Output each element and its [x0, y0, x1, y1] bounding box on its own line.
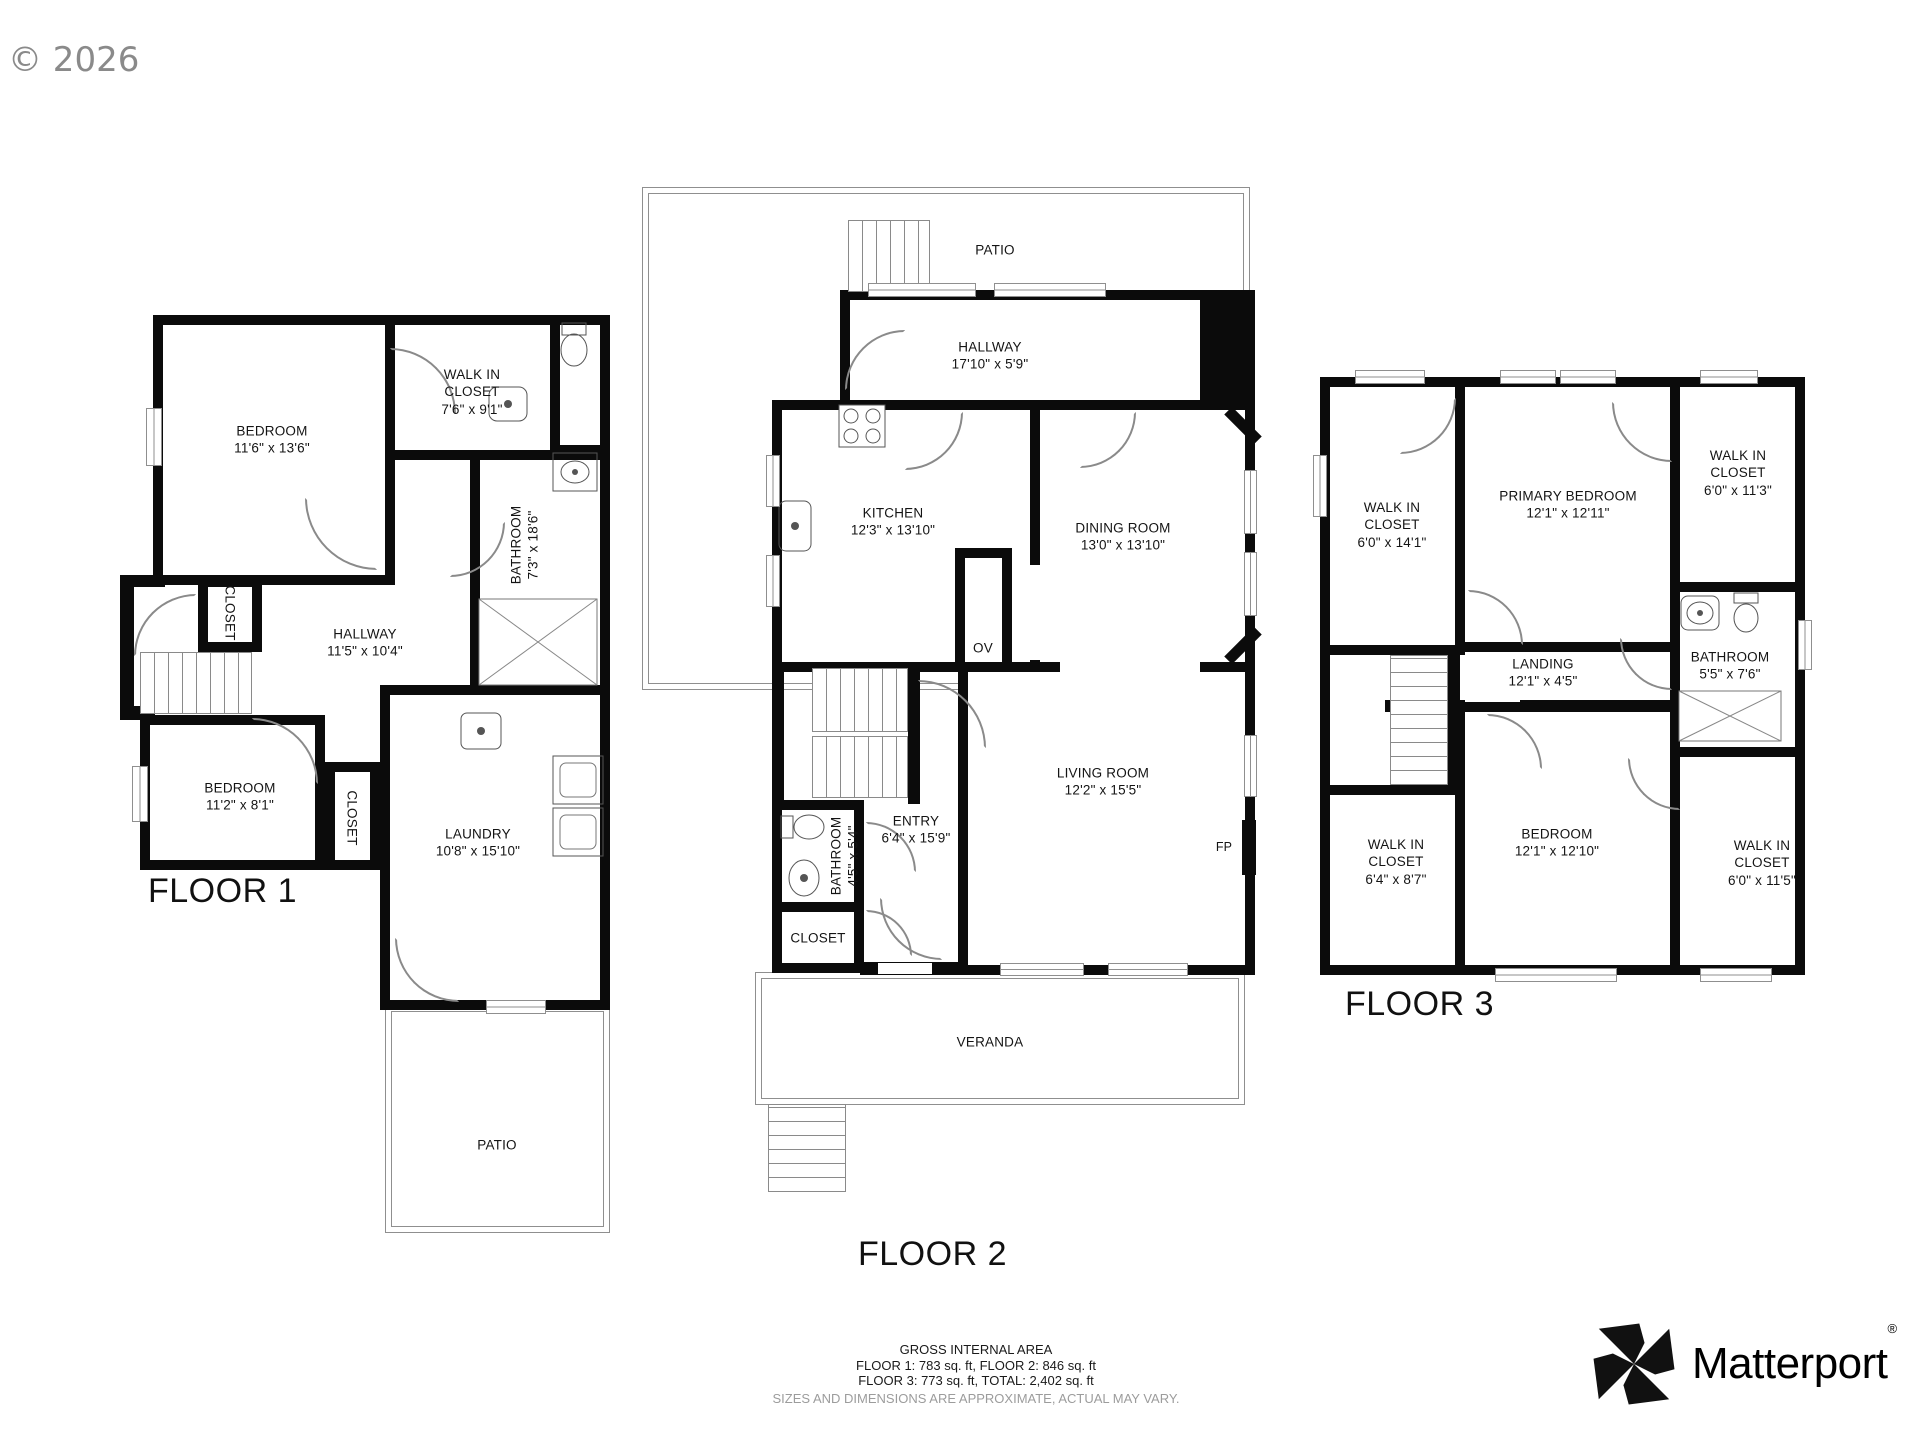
room-dims: 12'2" x 15'5": [1057, 782, 1149, 799]
room-name: WALK IN CLOSET: [1353, 499, 1431, 534]
floor3-stairs: [1390, 655, 1448, 785]
room-dims: 5'5" x 7'6": [1691, 666, 1770, 683]
utility-sink-icon: [460, 712, 502, 750]
floor2-patio-stairs: [848, 220, 930, 292]
floor3-window: [1560, 370, 1616, 384]
floor2-living-window: [1000, 963, 1084, 976]
room-label-kitchen: KITCHEN 12'3" x 13'10": [851, 505, 935, 540]
room-name: LIVING ROOM: [1057, 765, 1149, 782]
room-label-closet-lower: CLOSET: [343, 790, 360, 845]
floor1-bedroom2-window: [132, 766, 148, 822]
toilet-icon: [1726, 592, 1766, 634]
floor2-kitchen-window: [766, 455, 780, 507]
room-dims: 12'1" x 12'11": [1499, 505, 1637, 522]
room-name: BEDROOM: [234, 423, 310, 440]
room-label-living: LIVING ROOM 12'2" x 15'5": [1057, 765, 1149, 800]
floor1-stairs: [140, 652, 252, 714]
room-name: CLOSET: [221, 585, 238, 640]
room-dims: 7'6" x 9'1": [433, 401, 511, 418]
room-dims: 12'1" x 4'5": [1509, 673, 1578, 690]
room-name: WALK IN CLOSET: [1699, 447, 1777, 482]
floorplan-sheet: © 2026 BEDROOM 11'6" x 1: [0, 0, 1920, 1440]
room-label-bedroom3: BEDROOM 12'1" x 12'10": [1515, 826, 1599, 861]
brand-name: Matterport: [1692, 1339, 1888, 1388]
room-name: CLOSET: [343, 790, 360, 845]
floor2-hallway-window: [994, 283, 1106, 297]
floor2-label: FLOOR 2: [858, 1235, 1007, 1274]
room-dims: 12'3" x 13'10": [851, 522, 935, 539]
floor2-veranda-steps: [768, 1104, 846, 1192]
room-name: LANDING: [1509, 656, 1578, 673]
room-dims: 6'0" x 11'5": [1723, 872, 1801, 889]
room-name: HALLWAY: [952, 339, 1029, 356]
floor2-hallway-window: [868, 283, 976, 297]
footer-areas-line2: FLOOR 3: 773 sq. ft, TOTAL: 2,402 sq. ft: [616, 1373, 1336, 1389]
stove-icon: [838, 404, 886, 448]
room-name: BATHROOM: [508, 506, 525, 585]
floor3-window: [1495, 968, 1617, 982]
washer-icon: [552, 755, 604, 805]
floor2-dining-living-opening: [1060, 662, 1200, 674]
room-label-entry: ENTRY 6'4" x 15'9": [882, 813, 951, 848]
room-name: BEDROOM: [204, 780, 275, 797]
kitchen-sink-icon: [778, 500, 812, 552]
room-label-oven: OV: [973, 639, 993, 656]
floor3-window: [1313, 455, 1327, 517]
room-dims: 11'5" x 10'4": [327, 643, 403, 660]
room-name: VERANDA: [957, 1033, 1024, 1050]
shower-icon: [1678, 690, 1782, 742]
room-label-walkin-top-right: WALK IN CLOSET 6'0" x 11'3": [1699, 447, 1777, 499]
room-label-walkin-bottom-right: WALK IN CLOSET 6'0" x 11'5": [1723, 837, 1801, 889]
room-label-dining: DINING ROOM 13'0" x 13'10": [1075, 520, 1170, 555]
floor2-stairs-upper-run: [812, 668, 908, 732]
room-name: LAUNDRY: [436, 826, 520, 843]
room-label-bedroom1: BEDROOM 11'6" x 13'6": [234, 423, 310, 458]
room-name: WALK IN CLOSET: [1357, 836, 1435, 871]
room-label-walkin-bottom-left: WALK IN CLOSET 6'4" x 8'7": [1357, 836, 1435, 888]
room-label-patio2: PATIO: [975, 241, 1015, 258]
room-name: PATIO: [975, 241, 1015, 258]
floor1-left-wall: [120, 575, 134, 720]
room-label-bedroom2: BEDROOM 11'2" x 8'1": [204, 780, 275, 815]
shower-icon: [478, 598, 598, 686]
room-dims: 17'10" x 5'9": [952, 356, 1029, 373]
floor2-front-door-gap: [878, 963, 932, 974]
room-label-walkin-closet: WALK IN CLOSET 7'6" x 9'1": [433, 366, 511, 418]
room-name: WALK IN CLOSET: [433, 366, 511, 401]
floor3-label: FLOOR 3: [1345, 985, 1494, 1024]
room-name: PRIMARY BEDROOM: [1499, 488, 1637, 505]
room-name: BATHROOM: [828, 817, 845, 896]
floor3-bathroom-window: [1798, 620, 1812, 670]
sink-icon: [552, 452, 598, 492]
footer-area-summary: GROSS INTERNAL AREA FLOOR 1: 783 sq. ft,…: [616, 1342, 1336, 1406]
toilet-icon: [780, 810, 826, 844]
footer-areas-line1: FLOOR 1: 783 sq. ft, FLOOR 2: 846 sq. ft: [616, 1358, 1336, 1374]
floor3-window: [1355, 370, 1425, 384]
registered-mark: ®: [1888, 1321, 1897, 1336]
sink-icon: [1680, 595, 1720, 631]
floor2-hallway-right-wall: [1200, 290, 1255, 412]
dryer-icon: [552, 807, 604, 857]
floor2-living-window: [1244, 735, 1257, 797]
fireplace-wall: [1242, 820, 1256, 875]
floor1-entry-door-arc: [134, 594, 196, 656]
room-name: PATIO: [477, 1136, 517, 1153]
sink-icon: [786, 856, 822, 900]
floor2-living-room: [958, 662, 1255, 975]
room-dims: 6'0" x 11'3": [1699, 482, 1777, 499]
room-name: KITCHEN: [851, 505, 935, 522]
floor2-living-window: [1108, 963, 1188, 976]
footer-title: GROSS INTERNAL AREA: [616, 1342, 1336, 1358]
floor2-stairs-lower-run: [812, 736, 908, 798]
room-label-fireplace: FP: [1216, 839, 1232, 855]
room-dims: 6'4" x 15'9": [882, 830, 951, 847]
room-dims: 6'4" x 8'7": [1357, 871, 1435, 888]
floor2-bay-window: [1244, 470, 1257, 534]
floor1-laundry-window: [486, 1000, 546, 1014]
room-dims: 11'2" x 8'1": [204, 797, 275, 814]
room-dims: 6'0" x 14'1": [1353, 534, 1431, 551]
room-label-bathroom2: BATHROOM 4'5" x 5'4": [828, 817, 863, 896]
room-name: ENTRY: [882, 813, 951, 830]
copyright-watermark: © 2026: [8, 40, 139, 80]
room-dims: 13'0" x 13'10": [1075, 537, 1170, 554]
room-label-hallway1: HALLWAY 11'5" x 10'4": [327, 626, 403, 661]
room-dims: 12'1" x 12'10": [1515, 843, 1599, 860]
room-label-patio1: PATIO: [477, 1136, 517, 1153]
room-label-landing: LANDING 12'1" x 4'5": [1509, 656, 1578, 691]
floor3-window: [1500, 370, 1556, 384]
room-label-primary-bedroom: PRIMARY BEDROOM 12'1" x 12'11": [1499, 488, 1637, 523]
matterport-wordmark: Matterport®: [1692, 1339, 1897, 1389]
room-name: BATHROOM: [1691, 649, 1770, 666]
room-label-veranda: VERANDA: [957, 1033, 1024, 1050]
room-name: WALK IN CLOSET: [1723, 837, 1801, 872]
floor3-window: [1700, 370, 1758, 384]
room-name: OV: [973, 639, 993, 656]
floor1-bedroom1-window: [146, 408, 162, 466]
floor1-patio-outline: [385, 1005, 610, 1233]
floor1-wall-stub-upper: [120, 575, 165, 587]
floor2-kitchen-dining-opening: [1030, 565, 1042, 660]
floor3-window: [1700, 968, 1772, 982]
toilet-icon: [556, 322, 592, 368]
room-dims: 4'5" x 5'4": [845, 817, 862, 896]
footer-disclaimer: SIZES AND DIMENSIONS ARE APPROXIMATE, AC…: [616, 1391, 1336, 1407]
room-name: HALLWAY: [327, 626, 403, 643]
room-dims: 7'3" x 18'6": [525, 506, 542, 585]
room-name: DINING ROOM: [1075, 520, 1170, 537]
room-label-closet2: CLOSET: [790, 929, 845, 946]
floor1-label: FLOOR 1: [148, 872, 297, 911]
room-label-laundry: LAUNDRY 10'8" x 15'10": [436, 826, 520, 861]
room-label-closet-upper: CLOSET: [221, 585, 238, 640]
room-dims: 11'6" x 13'6": [234, 440, 310, 457]
floor2-kitchen-window: [766, 555, 780, 607]
matterport-logo: Matterport®: [1590, 1320, 1897, 1408]
room-dims: 10'8" x 15'10": [436, 843, 520, 860]
room-label-hallway2: HALLWAY 17'10" x 5'9": [952, 339, 1029, 374]
floor2-bay-window: [1244, 552, 1257, 616]
room-label-walkin-left: WALK IN CLOSET 6'0" x 14'1": [1353, 499, 1431, 551]
room-label-bathroom3: BATHROOM 5'5" x 7'6": [1691, 649, 1770, 684]
floor2-entry-left-wall: [772, 662, 784, 807]
matterport-pinwheel-icon: [1590, 1320, 1678, 1408]
room-name: FP: [1216, 839, 1232, 855]
room-label-bathroom1: BATHROOM 7'3" x 18'6": [508, 506, 543, 585]
room-name: CLOSET: [790, 929, 845, 946]
room-name: BEDROOM: [1515, 826, 1599, 843]
